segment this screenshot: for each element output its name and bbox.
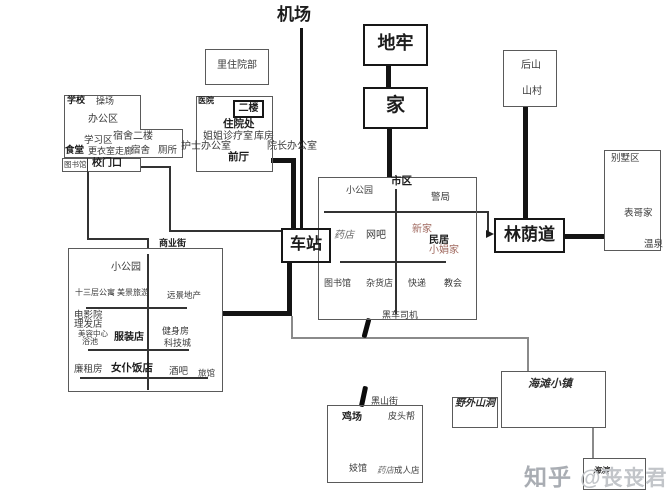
back-hill-label: 后山 [521,61,541,72]
downtown-express: 快递 [408,279,426,289]
school-canteen: 食堂 [65,146,84,156]
home-label: 家 [363,96,428,117]
edge-beach-seaside-v [592,428,594,459]
wild-cave-label: 野外山洞 [455,399,495,410]
hospital-inpatient-office: 住院处 [223,119,255,130]
edge-gate-station-h1 [141,166,170,168]
villa-area-box [604,150,661,251]
station-label: 车站 [281,236,331,253]
south-town-pitou-gang: 皮头帮 [388,412,415,422]
villa-hot-spring: 温泉 [644,240,663,250]
zhihu-watermark: 知乎@丧丧君 [524,458,666,492]
downtown-grocery: 杂货店 [366,279,393,289]
back-hill-box [503,50,557,107]
commercial-inn: 旅馆 [198,369,215,378]
south-town-adult-shop: 成人店 [394,466,420,475]
edge-gate-station-v [169,166,171,232]
commercial-bath-house: 浴池 [82,338,98,347]
school-study-area: 学习区 [84,136,113,146]
commercial-clothing-shop: 服装店 [114,333,144,344]
school-dorm-second-floor: 宿舍二楼 [113,132,153,143]
edge-station-beach-v2 [527,337,529,372]
commercial-low-rent-house: 廉租房 [74,365,103,375]
beach-town-label: 海滩小镇 [528,378,572,390]
boulevard-label: 林荫道 [494,226,565,244]
school-dorm: 宿舍 [131,146,150,156]
commercial-gym: 健身房 [162,327,189,337]
downtown-title: 市区 [391,176,412,187]
school-toilet: 厕所 [158,146,177,156]
edge-station-south-v [287,263,292,316]
commercial-bar: 酒吧 [169,367,188,377]
edge-gate-commercial-h [87,238,149,240]
airport-label: 机场 [277,6,311,24]
edge-airport-station [300,28,303,229]
downtown-church: 教会 [444,279,462,289]
commercial-vision-realty: 远景地产 [167,291,201,300]
hospital-second-floor: 二楼 [233,104,264,115]
edge-station-beach-v1 [291,316,293,338]
back-hill-village: 山村 [522,87,542,98]
game-map-diagram: 机场 里住院部 学校 操场 办公区 学习区 食堂 更衣室走廊 宿舍二楼 宿舍 厕… [0,0,666,500]
commercial-tech-city: 科技城 [164,339,191,349]
edge-dungeon-home [386,66,391,87]
edge-station-beach-h [291,337,528,339]
boulevard-arrowhead-icon [486,230,494,238]
edge-gate-commercial-v [87,172,89,240]
edge-hospital-station-v [291,158,296,228]
zhihu-author-label: @丧丧君 [580,467,666,490]
edge-station-commercial-h [223,311,292,316]
school-gate: 校门口 [92,159,122,170]
downtown-pharmacy: 药店 [334,231,354,242]
school-gate-divider [87,158,88,172]
school-changing-corridor: 更衣室走廊 [88,147,133,157]
hospital-dean-office: 院长办公室 [267,142,317,153]
commercial-maid-restaurant: 女仆饭店 [111,363,153,374]
commercial-scenic-travel: 美景旅游 [117,289,149,298]
inpatient-dept-label: 里住院部 [205,61,269,72]
school-title: 学校 [67,96,85,106]
hospital-title: 医院 [198,97,214,106]
black-car-driver-label: 黑车司机 [382,311,418,321]
commercial-apartment-13f: 十三层公寓 [75,289,115,298]
edge-backhill-boulevard [523,107,528,218]
black-car-route-stroke [361,318,371,339]
hospital-nurse-office: 护士办公室 [181,142,231,153]
downtown-police-station: 警局 [431,193,450,203]
downtown-small-park: 小公园 [346,186,373,196]
downtown-library: 图书馆 [324,279,351,289]
commercial-small-park: 小公园 [111,263,141,274]
downtown-xiaojuan-home: 小娟家 [429,246,459,257]
villa-area-title: 别墅区 [611,154,640,164]
zhihu-brand-label: 知乎 [524,464,572,490]
hospital-front-hall: 前厅 [228,152,249,163]
black-hill-street-label: 黑山街 [371,397,398,407]
south-town-pharmacy: 药店 [377,466,394,475]
school-office-area: 办公区 [88,115,118,126]
dungeon-label: 地牢 [363,34,428,53]
downtown-internet-cafe: 网吧 [366,231,386,242]
edge-home-downtown [387,129,392,178]
villa-cousin-house: 表哥家 [624,209,653,219]
commercial-title: 商业街 [159,239,186,249]
south-town-chicken-farm: 鸡场 [342,413,362,424]
school-playground: 操场 [96,97,114,107]
edge-gate-station-h2 [169,230,281,232]
south-town-brothel: 妓馆 [349,464,367,474]
school-library: 图书馆 [64,161,87,169]
edge-boulevard-villa [565,234,604,239]
